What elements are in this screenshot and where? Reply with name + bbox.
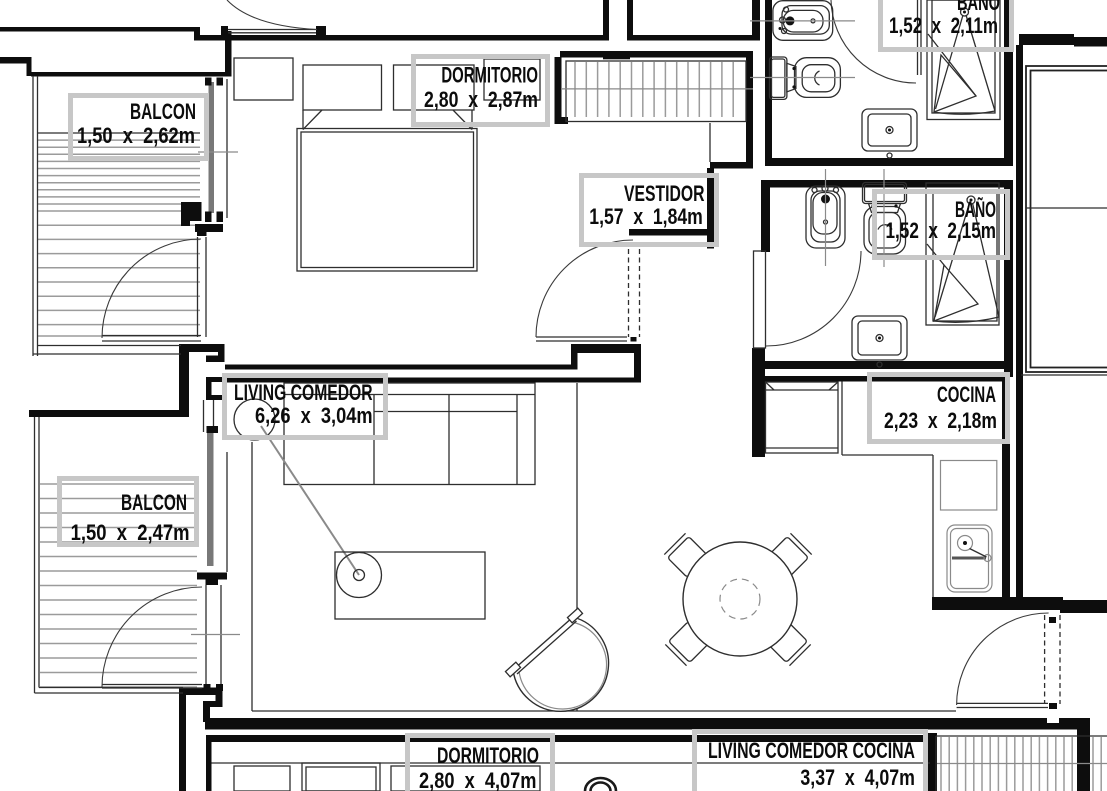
svg-text:2,23 x 2,18m: 2,23 x 2,18m	[884, 408, 997, 433]
svg-text:VESTIDOR: VESTIDOR	[624, 181, 705, 206]
svg-text:COCINA: COCINA	[937, 382, 996, 407]
svg-text:LIVING COMEDOR COCINA: LIVING COMEDOR COCINA	[708, 738, 915, 763]
svg-text:DORMITORIO: DORMITORIO	[441, 63, 538, 88]
svg-text:6,26 x 3,04m: 6,26 x 3,04m	[255, 403, 373, 428]
svg-text:1,50 x 2,47m: 1,50 x 2,47m	[71, 520, 190, 545]
svg-text:2,80 x 2,87m: 2,80 x 2,87m	[424, 87, 538, 112]
svg-text:BALCON: BALCON	[121, 490, 187, 515]
svg-text:1,52 x 2,11m: 1,52 x 2,11m	[889, 13, 998, 38]
svg-text:1,57 x 1,84m: 1,57 x 1,84m	[589, 204, 703, 229]
svg-text:1,50 x 2,62m: 1,50 x 2,62m	[77, 123, 195, 148]
svg-text:DORMITORIO: DORMITORIO	[437, 743, 539, 768]
svg-text:BALCON: BALCON	[130, 99, 196, 124]
svg-text:2,80 x 4,07m: 2,80 x 4,07m	[419, 768, 537, 791]
svg-text:3,37 x 4,07m: 3,37 x 4,07m	[800, 765, 915, 790]
svg-text:1,52 x 2,15m: 1,52 x 2,15m	[886, 218, 997, 243]
svg-text:LIVING COMEDOR: LIVING COMEDOR	[234, 380, 373, 405]
